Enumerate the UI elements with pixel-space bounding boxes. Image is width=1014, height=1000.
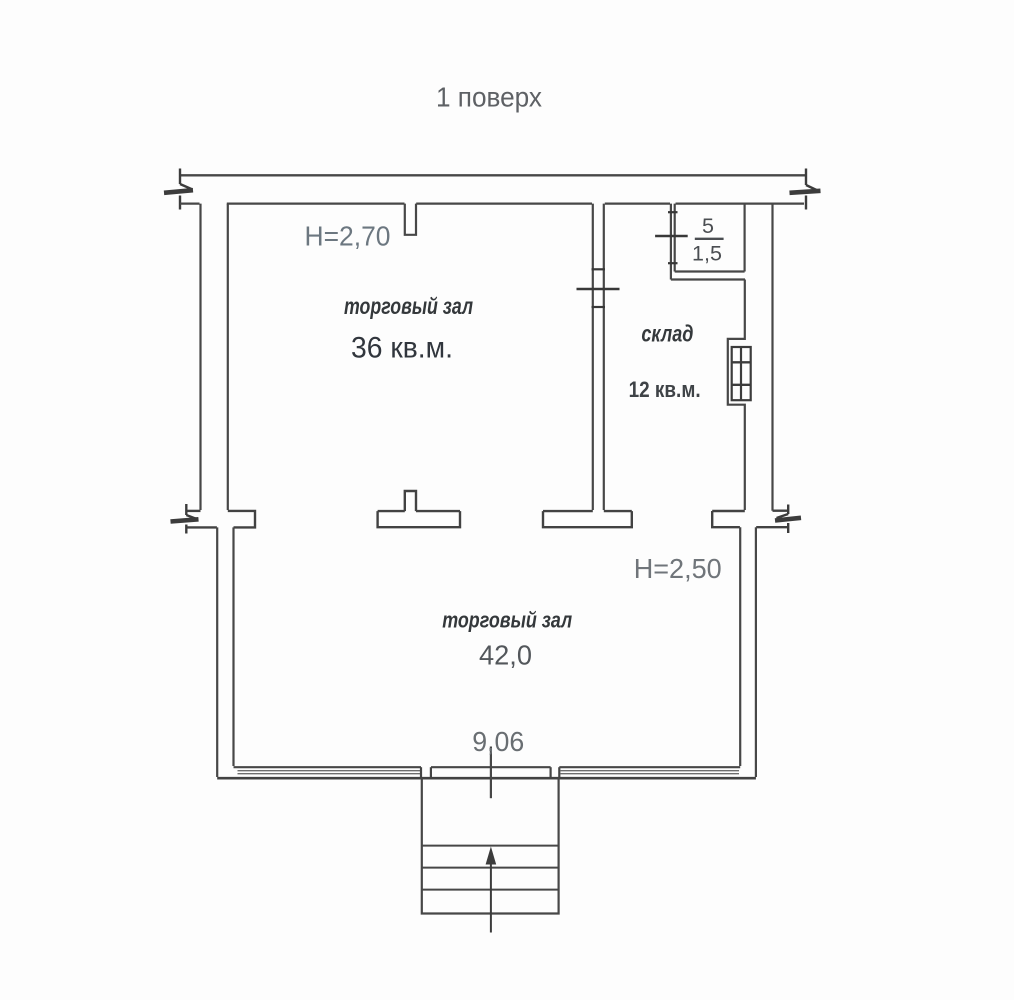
svg-text:Н=2,70: Н=2,70 [305, 220, 391, 251]
svg-text:торговый зал: торговый зал [442, 607, 572, 632]
svg-text:торговый зал: торговый зал [344, 293, 473, 319]
svg-text:склад: склад [641, 321, 693, 347]
svg-text:36 кв.м.: 36 кв.м. [351, 332, 453, 365]
svg-text:1 поверх: 1 поверх [436, 82, 542, 113]
svg-text:12 кв.м.: 12 кв.м. [629, 377, 701, 402]
svg-text:5: 5 [702, 214, 714, 238]
svg-text:1,5: 1,5 [692, 242, 722, 266]
svg-text:9,06: 9,06 [472, 726, 524, 757]
svg-text:Н=2,50: Н=2,50 [634, 553, 722, 584]
svg-text:42,0: 42,0 [479, 640, 532, 671]
